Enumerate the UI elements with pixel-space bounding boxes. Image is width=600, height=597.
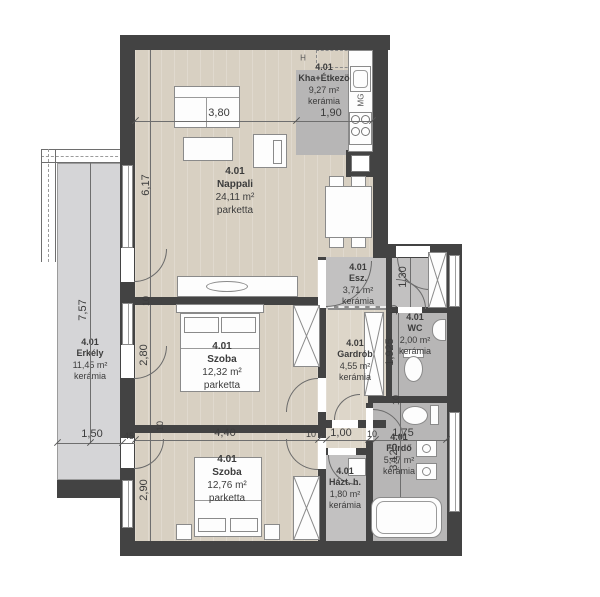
bathtub-inner <box>376 501 437 534</box>
wall-top <box>120 35 390 50</box>
window-bathroom <box>449 412 460 512</box>
wardrobe-hall <box>428 252 447 308</box>
nightstand <box>264 524 280 540</box>
bed2-pillow <box>198 518 226 532</box>
bedroom1-door-opening <box>318 378 326 412</box>
dim-10: 10 <box>391 395 401 405</box>
dim-line <box>150 305 151 425</box>
bed1-pillow <box>221 317 256 333</box>
bath-toilet-bowl <box>402 406 428 425</box>
wardrobe-bedroom1 <box>293 305 320 367</box>
bed2-pillow <box>230 518 258 532</box>
dim-line <box>90 163 91 443</box>
wall-bottom <box>120 541 462 556</box>
dim-line <box>135 121 373 122</box>
room-label-wardrobe-room: 4.01 Gardrób 4,55 m² kerámia <box>322 338 388 383</box>
dining-chair <box>329 237 344 248</box>
wc-toilet-bowl <box>404 356 423 382</box>
wall-bath-top <box>368 396 447 403</box>
dim-1-00: 1,00 <box>330 427 351 439</box>
railing-line <box>41 162 123 163</box>
bath-toilet-tank <box>430 405 439 425</box>
dim-1-90: 1,90 <box>320 107 341 119</box>
dim-2-90: 2,90 <box>138 479 150 500</box>
utility-door-opening <box>328 448 356 455</box>
stove-burner <box>351 127 360 136</box>
wall-right-upper <box>373 35 388 258</box>
stove-burner <box>361 127 370 136</box>
bed1-pillow <box>184 317 219 333</box>
dim-line <box>410 258 411 307</box>
railing-line <box>55 149 56 262</box>
dim-line <box>398 313 399 396</box>
tv-on-sideboard <box>206 281 248 292</box>
balcony-door-opening-living <box>121 248 134 282</box>
nightstand <box>176 524 192 540</box>
window-bedroom2 <box>122 480 133 528</box>
dining-chair <box>351 176 366 187</box>
dim-4-40: 4,40 <box>214 427 235 439</box>
wardrobe-x <box>294 306 319 366</box>
bed1-headboard <box>176 304 264 313</box>
room-label-kitchen: 4.01 Kha+Étkezö 9,27 m² kerámia <box>286 62 362 107</box>
room-label-hall: 4.01 Esz. 3,71 m² kerámia <box>330 262 386 307</box>
bedroom2-door-opening <box>318 438 326 469</box>
wall-left <box>120 35 135 556</box>
window-bedroom1 <box>122 303 133 345</box>
dim-3-80: 3,80 <box>208 107 229 119</box>
window-living <box>122 165 133 248</box>
shaft-inner <box>351 155 370 172</box>
dim-10: 10 <box>155 421 165 431</box>
window-hall <box>449 255 460 307</box>
hall-door-opening <box>318 260 326 308</box>
dim-10: 10 <box>367 429 377 439</box>
sofa-cushion-line <box>206 98 207 127</box>
floor-plan: H MG 4.01 Kha+Étkezö 9,27 m² kerámia <box>0 0 600 597</box>
dim-line <box>150 433 151 541</box>
dim-3-125: 3,125 <box>388 443 400 471</box>
sofa-back-line <box>175 97 239 98</box>
wardrobe-x <box>429 253 446 307</box>
dining-chair <box>329 176 344 187</box>
dim-10: 10 <box>141 296 151 306</box>
entrance-door-opening <box>396 246 430 257</box>
tv-stand-inner <box>273 140 282 164</box>
dim-7-57: 7,57 <box>77 299 89 320</box>
railing-dash <box>41 156 123 157</box>
railing-line <box>41 149 42 262</box>
dining-chair <box>351 237 366 248</box>
coffee-table <box>183 137 233 161</box>
dim-45: 45 <box>124 431 134 441</box>
dim-1-925: 1,925 <box>384 338 396 366</box>
dim-10: 10 <box>306 429 316 439</box>
room-label-living: 4.01 Nappali 24,11 m² parketta <box>195 165 275 217</box>
railing-line <box>41 149 123 150</box>
dining-table <box>325 186 372 238</box>
balcony-door-opening-bedroom1 <box>121 345 134 378</box>
room-label-bedroom1: 4.01 Szoba 12,32 m² parketta <box>182 340 262 392</box>
stove-burner <box>351 115 360 124</box>
dim-10: 10 <box>389 305 399 315</box>
wardrobe-x <box>294 477 319 539</box>
dim-6-17: 6,17 <box>140 174 152 195</box>
dim-line <box>400 403 401 497</box>
room-label-utility: 4.01 Házt. h. 1,80 m² kerámia <box>321 466 369 511</box>
railing-dash <box>48 149 49 262</box>
dim-1-75: 1,75 <box>392 427 413 439</box>
dim-1-30: 1,30 <box>397 266 409 287</box>
dim-2-80: 2,80 <box>138 344 150 365</box>
dim-1-50: 1,50 <box>81 428 102 440</box>
room-label-bedroom2: 4.01 Szoba 12,76 m² parketta <box>187 453 267 505</box>
wardrobe-bedroom2 <box>293 476 320 540</box>
dim-line <box>57 443 135 444</box>
